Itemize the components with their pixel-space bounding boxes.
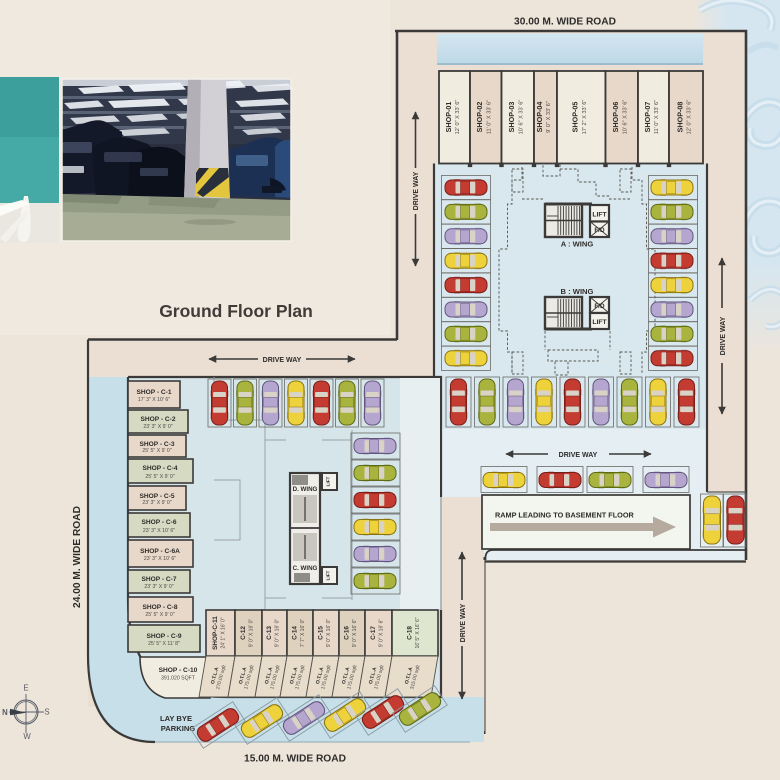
svg-text:DRIVE WAY: DRIVE WAY — [413, 171, 420, 210]
svg-text:SHOP - C-8: SHOP - C-8 — [142, 604, 177, 611]
svg-text:11' 0" X 33' 6": 11' 0" X 33' 6" — [486, 100, 492, 134]
svg-text:SHOP-04: SHOP-04 — [535, 102, 544, 133]
svg-text:C-14: C-14 — [292, 626, 299, 640]
svg-text:9' 0" X 16' 0": 9' 0" X 16' 0" — [275, 619, 281, 647]
svg-text:SHOP-05: SHOP-05 — [571, 102, 580, 133]
svg-text:SHOP - C-6: SHOP - C-6 — [141, 519, 176, 526]
svg-text:DRIVE WAY: DRIVE WAY — [263, 357, 302, 364]
svg-text:C-17: C-17 — [370, 626, 377, 640]
svg-text:D. WING: D. WING — [293, 486, 318, 493]
svg-text:SHOP - C-3: SHOP - C-3 — [139, 441, 174, 448]
svg-text:SHOP-01: SHOP-01 — [444, 102, 453, 133]
svg-text:17' 3" X 10' 6": 17' 3" X 10' 6" — [138, 397, 170, 403]
svg-text:25' 5" X 9' 0": 25' 5" X 9' 0" — [145, 474, 174, 480]
svg-text:9' 0" X 16' 0": 9' 0" X 16' 0" — [326, 619, 332, 647]
svg-text:S: S — [44, 708, 49, 717]
svg-text:SHOP - C-5: SHOP - C-5 — [139, 493, 174, 500]
svg-text:9' 0" X 33' 6": 9' 0" X 33' 6" — [546, 101, 552, 133]
svg-text:RAMP LEADING TO BASEMENT FLOOR: RAMP LEADING TO BASEMENT FLOOR — [495, 511, 635, 520]
svg-text:391.020 SQFT: 391.020 SQFT — [161, 676, 196, 682]
svg-text:SHOP - C-7: SHOP - C-7 — [141, 576, 176, 583]
svg-text:24' 1" X 16' 0": 24' 1" X 16' 0" — [221, 617, 227, 648]
svg-text:SHOP-06: SHOP-06 — [611, 102, 620, 133]
svg-text:DRIVE WAY: DRIVE WAY — [559, 452, 598, 459]
svg-text:17' 2" X 33' 6": 17' 2" X 33' 6" — [582, 100, 588, 135]
svg-text:SHOP - C-1: SHOP - C-1 — [136, 389, 171, 396]
svg-text:LAY BYE: LAY BYE — [160, 714, 192, 723]
svg-text:24.00 M. WIDE ROAD: 24.00 M. WIDE ROAD — [72, 506, 83, 608]
svg-text:23' 3" X 9' 0": 23' 3" X 9' 0" — [144, 584, 173, 590]
svg-text:SHOP - C-9: SHOP - C-9 — [146, 633, 181, 640]
svg-text:25' 5" X 9' 0": 25' 5" X 9' 0" — [145, 612, 174, 618]
svg-text:10' 6" X 33' 6": 10' 6" X 33' 6" — [518, 100, 524, 135]
svg-text:LIFT: LIFT — [326, 570, 331, 580]
svg-text:12' 0" X 33' 6": 12' 0" X 33' 6" — [687, 100, 693, 135]
svg-text:9' 0" X 16' 6": 9' 0" X 16' 6" — [352, 619, 358, 647]
svg-text:LIFT: LIFT — [326, 476, 331, 486]
svg-text:W: W — [23, 732, 31, 741]
svg-text:N: N — [2, 708, 8, 717]
svg-text:F/D: F/D — [594, 303, 605, 310]
svg-text:SHOP-08: SHOP-08 — [675, 102, 684, 133]
svg-text:A : WING: A : WING — [561, 240, 594, 249]
svg-text:C-18: C-18 — [407, 626, 414, 640]
svg-text:9' 0" X 16' 6": 9' 0" X 16' 6" — [379, 619, 385, 647]
svg-text:SHOP-03: SHOP-03 — [507, 102, 516, 133]
svg-text:9' 0" X 16' 0": 9' 0" X 16' 0" — [249, 619, 255, 647]
svg-text:C-12: C-12 — [240, 626, 247, 640]
svg-text:SHOP - C-4: SHOP - C-4 — [142, 465, 177, 472]
svg-text:SHOP - C-2: SHOP - C-2 — [140, 416, 175, 423]
svg-text:23' 3" X 9' 0": 23' 3" X 9' 0" — [142, 500, 171, 506]
svg-text:B : WING: B : WING — [561, 287, 594, 296]
svg-text:10' 6" X 33' 6": 10' 6" X 33' 6" — [622, 100, 628, 135]
svg-text:25' 5" X 11' 8": 25' 5" X 11' 8" — [148, 641, 180, 647]
svg-text:15.00 M. WIDE ROAD: 15.00 M. WIDE ROAD — [244, 754, 346, 765]
svg-text:11' 0" X 33' 6": 11' 0" X 33' 6" — [654, 100, 660, 134]
svg-text:LIFT: LIFT — [592, 319, 607, 326]
svg-text:C-13: C-13 — [266, 626, 273, 640]
svg-text:DRIVE WAY: DRIVE WAY — [460, 603, 467, 642]
svg-text:30.00 M. WIDE ROAD: 30.00 M. WIDE ROAD — [514, 17, 616, 28]
svg-text:12' 0" X 33' 6": 12' 0" X 33' 6" — [455, 100, 461, 135]
svg-text:DRIVE WAY: DRIVE WAY — [720, 316, 727, 355]
svg-text:25' 5" X 9' 0": 25' 5" X 9' 0" — [142, 448, 171, 454]
svg-text:23' 3" X 9' 0": 23' 3" X 9' 0" — [143, 424, 172, 430]
svg-text:C-16: C-16 — [344, 626, 351, 640]
svg-text:SHOP - C-6A: SHOP - C-6A — [140, 548, 180, 555]
svg-text:E: E — [23, 684, 28, 693]
svg-text:SHOP-C-11: SHOP-C-11 — [212, 616, 219, 650]
svg-text:Ground Floor Plan: Ground Floor Plan — [159, 301, 313, 321]
svg-text:LIFT: LIFT — [592, 212, 607, 219]
svg-text:23' 3" X 10' 6": 23' 3" X 10' 6" — [143, 528, 175, 534]
svg-text:F/D: F/D — [594, 227, 605, 234]
svg-text:7' 7" X 16' 0": 7' 7" X 16' 0" — [300, 619, 306, 647]
svg-text:PARKING: PARKING — [161, 724, 196, 733]
svg-text:23' 3" X 10' 6": 23' 3" X 10' 6" — [144, 556, 176, 562]
svg-text:16' 5" X 16' 6": 16' 5" X 16' 6" — [415, 617, 421, 648]
svg-text:SHOP-02: SHOP-02 — [475, 102, 484, 133]
svg-text:SHOP-07: SHOP-07 — [643, 102, 652, 133]
svg-text:SHOP - C-10: SHOP - C-10 — [159, 667, 198, 674]
svg-text:C-15: C-15 — [318, 626, 325, 640]
svg-text:C. WING: C. WING — [293, 565, 318, 572]
